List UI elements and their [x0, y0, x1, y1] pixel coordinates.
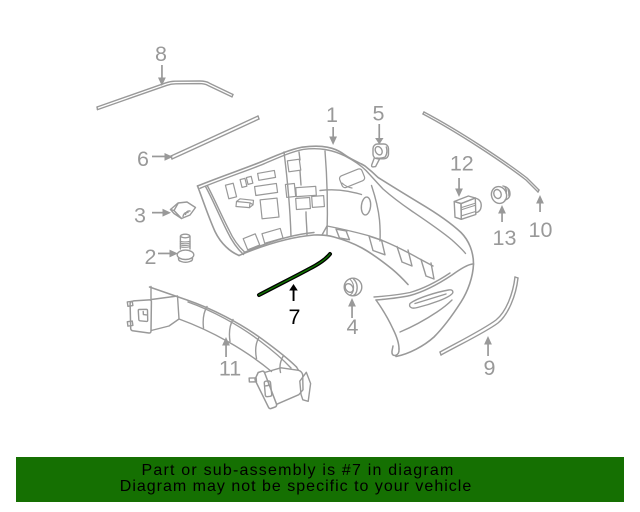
svg-text:3: 3 — [134, 204, 146, 228]
svg-text:8: 8 — [155, 42, 167, 66]
svg-text:1: 1 — [326, 103, 338, 127]
svg-text:5: 5 — [373, 102, 385, 126]
svg-text:11: 11 — [219, 357, 241, 381]
svg-text:4: 4 — [347, 315, 359, 339]
svg-text:13: 13 — [493, 226, 517, 250]
svg-text:2: 2 — [145, 245, 157, 269]
svg-text:10: 10 — [529, 218, 553, 242]
svg-text:6: 6 — [137, 147, 149, 171]
svg-text:Part or sub-assembly is #7 in: Part or sub-assembly is #7 in diagram — [142, 462, 455, 479]
svg-text:12: 12 — [450, 152, 474, 176]
svg-text:9: 9 — [484, 356, 496, 380]
svg-text:Diagram may not be specific to: Diagram may not be specific to your vehi… — [120, 478, 472, 495]
svg-text:7: 7 — [289, 305, 301, 329]
